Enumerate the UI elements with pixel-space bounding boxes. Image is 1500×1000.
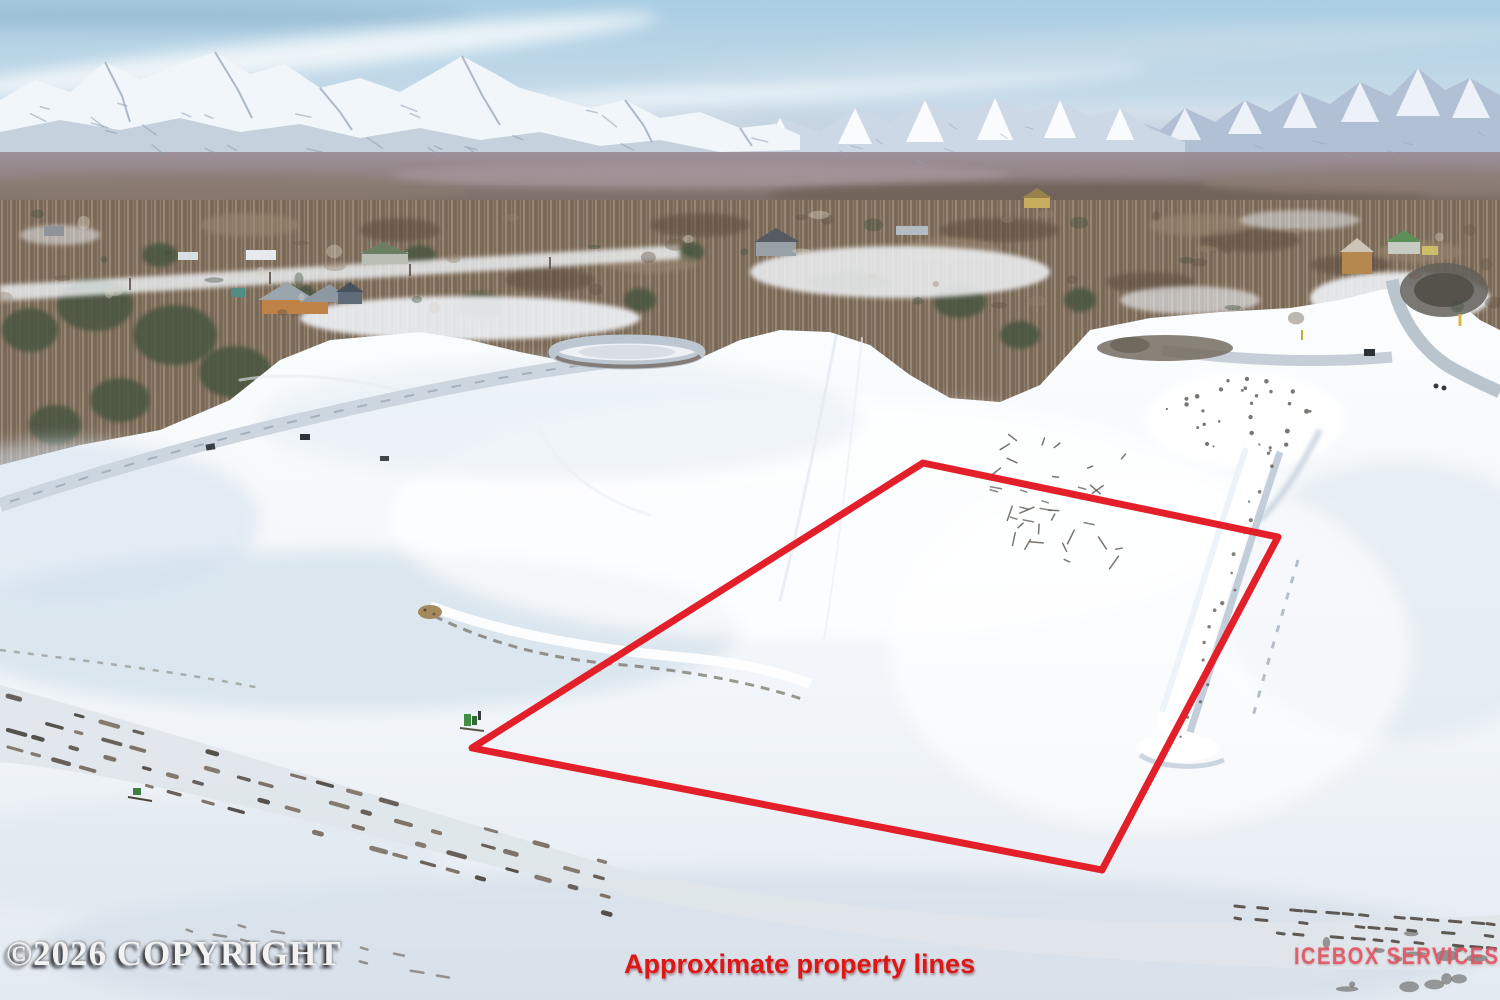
aerial-photo: ©2026 COPYRIGHT Approximate property lin… — [0, 0, 1500, 1000]
copyright-watermark: ©2026 COPYRIGHT — [6, 934, 342, 974]
property-outline-layer — [0, 0, 1500, 1000]
brand-watermark: ICEBOX SERVICES — [1294, 944, 1500, 971]
property-outline — [472, 463, 1278, 870]
property-lines-caption: Approximate property lines — [624, 949, 975, 980]
